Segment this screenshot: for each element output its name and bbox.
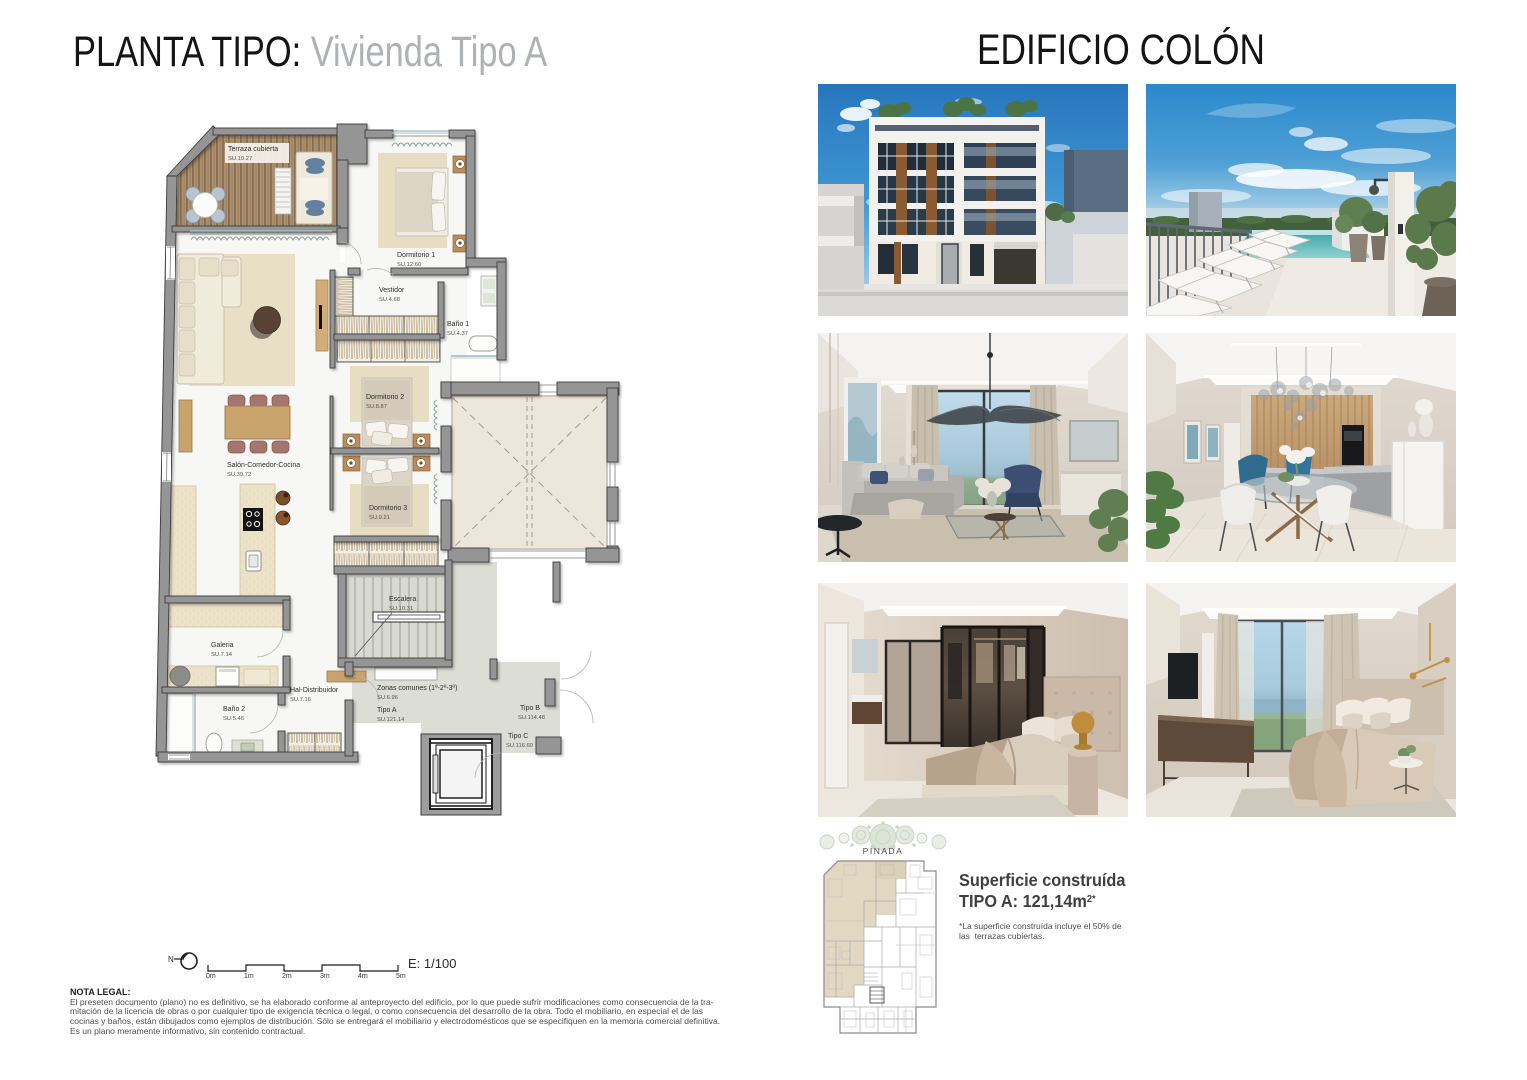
svg-text:3m: 3m (320, 973, 330, 980)
svg-text:Escalera: Escalera (389, 596, 416, 603)
svg-text:0m: 0m (206, 973, 216, 980)
svg-text:1m: 1m (244, 973, 254, 980)
svg-text:SU.116.60: SU.116.60 (506, 743, 533, 749)
svg-text:Baño 2: Baño 2 (223, 706, 245, 713)
svg-text:SU.7.14: SU.7.14 (211, 652, 233, 658)
svg-text:SU.39.72: SU.39.72 (227, 472, 251, 478)
svg-text:Dormitorio 1: Dormitorio 1 (397, 252, 435, 259)
svg-text:Zonas comunes (1º-2º-3º): Zonas comunes (1º-2º-3º) (377, 685, 457, 692)
svg-text:SU.114.48: SU.114.48 (518, 715, 545, 721)
svg-text:SU.12.60: SU.12.60 (397, 262, 421, 268)
svg-text:Tipo B: Tipo B (520, 705, 540, 712)
svg-text:SU.8.87: SU.8.87 (366, 404, 387, 410)
svg-text:SU.121.14: SU.121.14 (377, 717, 405, 723)
svg-text:SU.7.16: SU.7.16 (290, 697, 311, 703)
svg-text:SU.10.27: SU.10.27 (228, 156, 252, 162)
svg-text:2m: 2m (282, 973, 292, 980)
svg-text:5m: 5m (396, 973, 406, 980)
svg-text:Hal-Distribuidor: Hal-Distribuidor (290, 687, 339, 694)
svg-text:SU.4.37: SU.4.37 (447, 331, 468, 337)
svg-text:Galeria: Galeria (211, 642, 234, 649)
svg-text:Vestidor: Vestidor (379, 287, 405, 294)
svg-text:Baño 1: Baño 1 (447, 321, 469, 328)
svg-text:Salón-Comedor-Cocina: Salón-Comedor-Cocina (227, 462, 300, 469)
svg-text:Dormitorio 3: Dormitorio 3 (369, 505, 407, 512)
svg-text:SU.5.46: SU.5.46 (223, 716, 244, 722)
svg-text:SU.4.68: SU.4.68 (379, 297, 400, 303)
svg-text:Tipo A: Tipo A (377, 707, 397, 714)
svg-text:N: N (168, 955, 174, 964)
svg-text:SU.9.21: SU.9.21 (369, 515, 390, 521)
svg-text:SU.10.31: SU.10.31 (389, 606, 413, 612)
svg-text:Tipo C: Tipo C (508, 733, 528, 740)
svg-text:Terraza cubierta: Terraza cubierta (228, 146, 278, 153)
svg-text:4m: 4m (358, 973, 368, 980)
svg-text:SU.6.96: SU.6.96 (377, 695, 398, 701)
svg-text:Dormitorio 2: Dormitorio 2 (366, 394, 404, 401)
